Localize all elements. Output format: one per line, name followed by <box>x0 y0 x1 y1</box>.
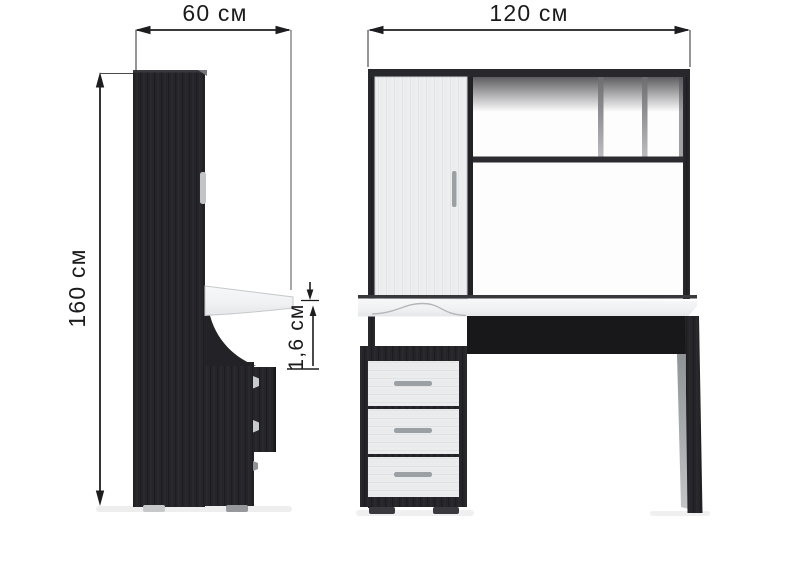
drawer-handle-end <box>253 461 258 471</box>
cabinet-door-handle-side <box>200 172 206 204</box>
foot <box>226 505 248 512</box>
tall-cabinet-side <box>133 70 205 507</box>
door-right-divider <box>467 77 473 296</box>
drawer-handle <box>394 472 432 477</box>
dim-front-width <box>368 26 690 67</box>
door-handle <box>452 171 457 207</box>
dim-height <box>96 72 133 506</box>
hutch-divider <box>598 76 604 157</box>
arrowhead-right <box>675 26 691 34</box>
desk-back-edge <box>358 295 697 299</box>
right-leg <box>685 316 703 513</box>
arrowhead-left <box>135 26 151 34</box>
product-dimension-diagram: 60 см 120 см 160 см 1,6 см <box>0 0 800 565</box>
hutch-top-panel <box>368 69 690 77</box>
dim-label-side-width: 60 см <box>150 0 280 26</box>
desk-apron <box>467 316 688 354</box>
furniture-illustration <box>0 0 800 565</box>
front-view <box>356 69 710 516</box>
arrowhead-right <box>276 26 292 34</box>
arrowhead-up <box>96 72 104 88</box>
side-view <box>96 70 293 512</box>
dim-label-height: 160 см <box>64 223 90 353</box>
hutch-shelf <box>472 157 684 163</box>
desktop-front <box>358 299 697 317</box>
arrowhead-down <box>96 491 104 507</box>
right-upright <box>683 77 690 299</box>
hutch-divider <box>642 76 648 157</box>
foot <box>143 505 165 512</box>
drawer-handle <box>394 428 432 433</box>
foot <box>369 507 395 514</box>
dim-label-desktop-thickness: 1,6 см <box>284 272 310 402</box>
desktop-side <box>205 286 293 316</box>
arrowhead-left <box>368 26 384 34</box>
drawer-handle <box>394 381 432 386</box>
dim-label-front-width: 120 см <box>464 0 594 26</box>
foot <box>433 507 459 514</box>
